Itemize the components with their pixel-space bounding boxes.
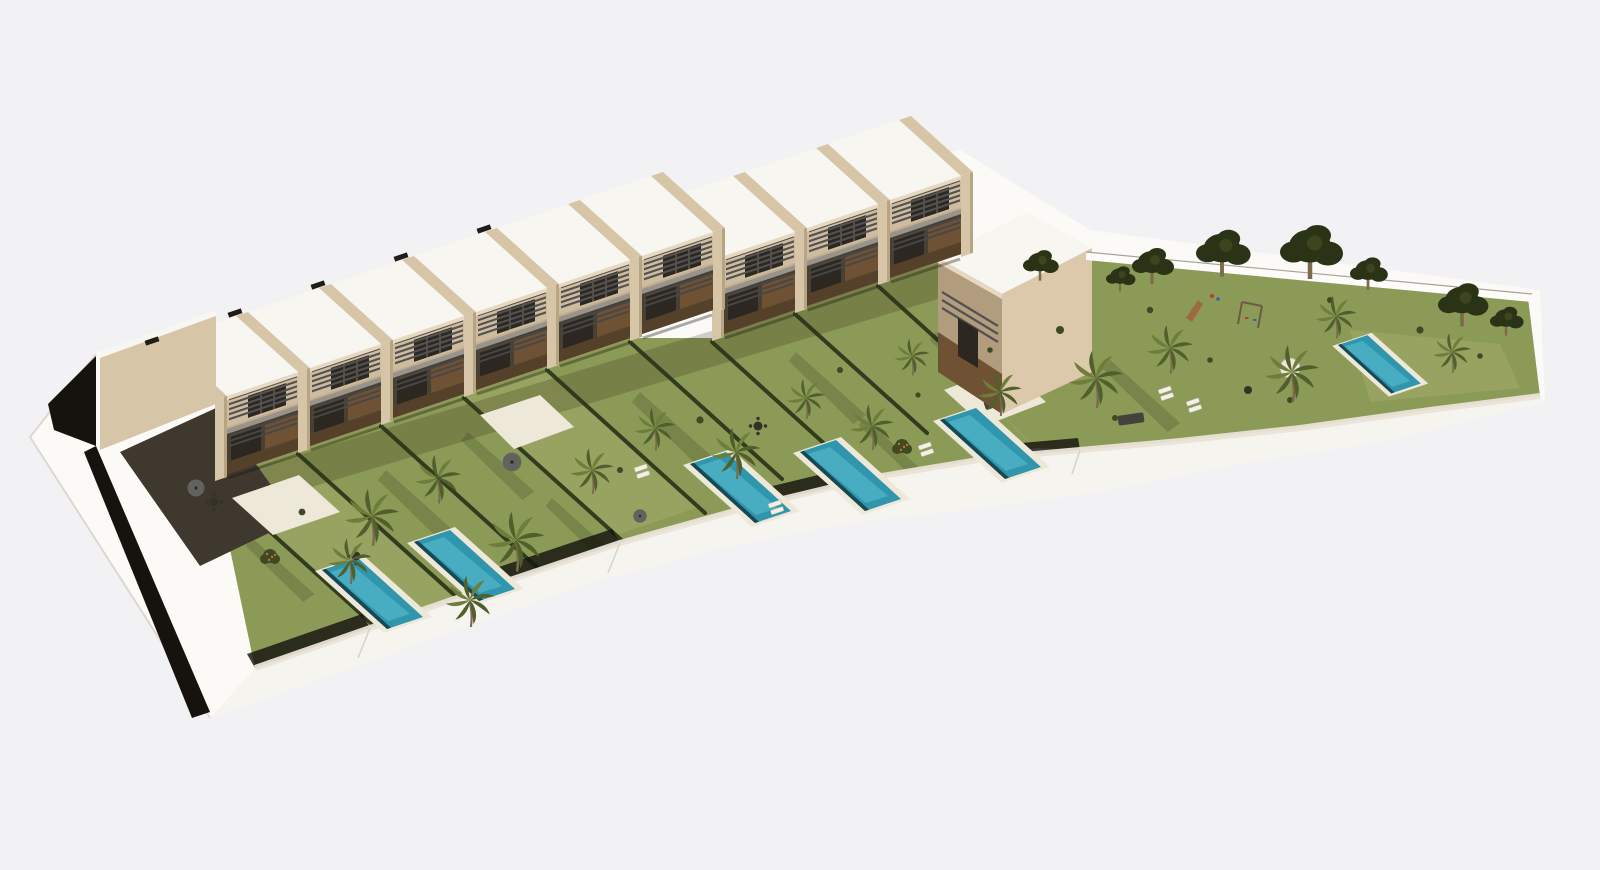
play-equipment	[1210, 294, 1214, 298]
swing-seat	[1245, 317, 1249, 319]
fire-pit	[1244, 386, 1252, 394]
architectural-render: Aerial 3D architectural rendering of a m…	[0, 0, 1600, 870]
render-canvas: Aerial 3D architectural rendering of a m…	[0, 0, 1600, 870]
parasol	[633, 509, 647, 523]
swing-seat	[1253, 319, 1257, 321]
parasol	[188, 480, 205, 497]
play-equipment	[1216, 297, 1220, 301]
parasol	[503, 453, 522, 472]
